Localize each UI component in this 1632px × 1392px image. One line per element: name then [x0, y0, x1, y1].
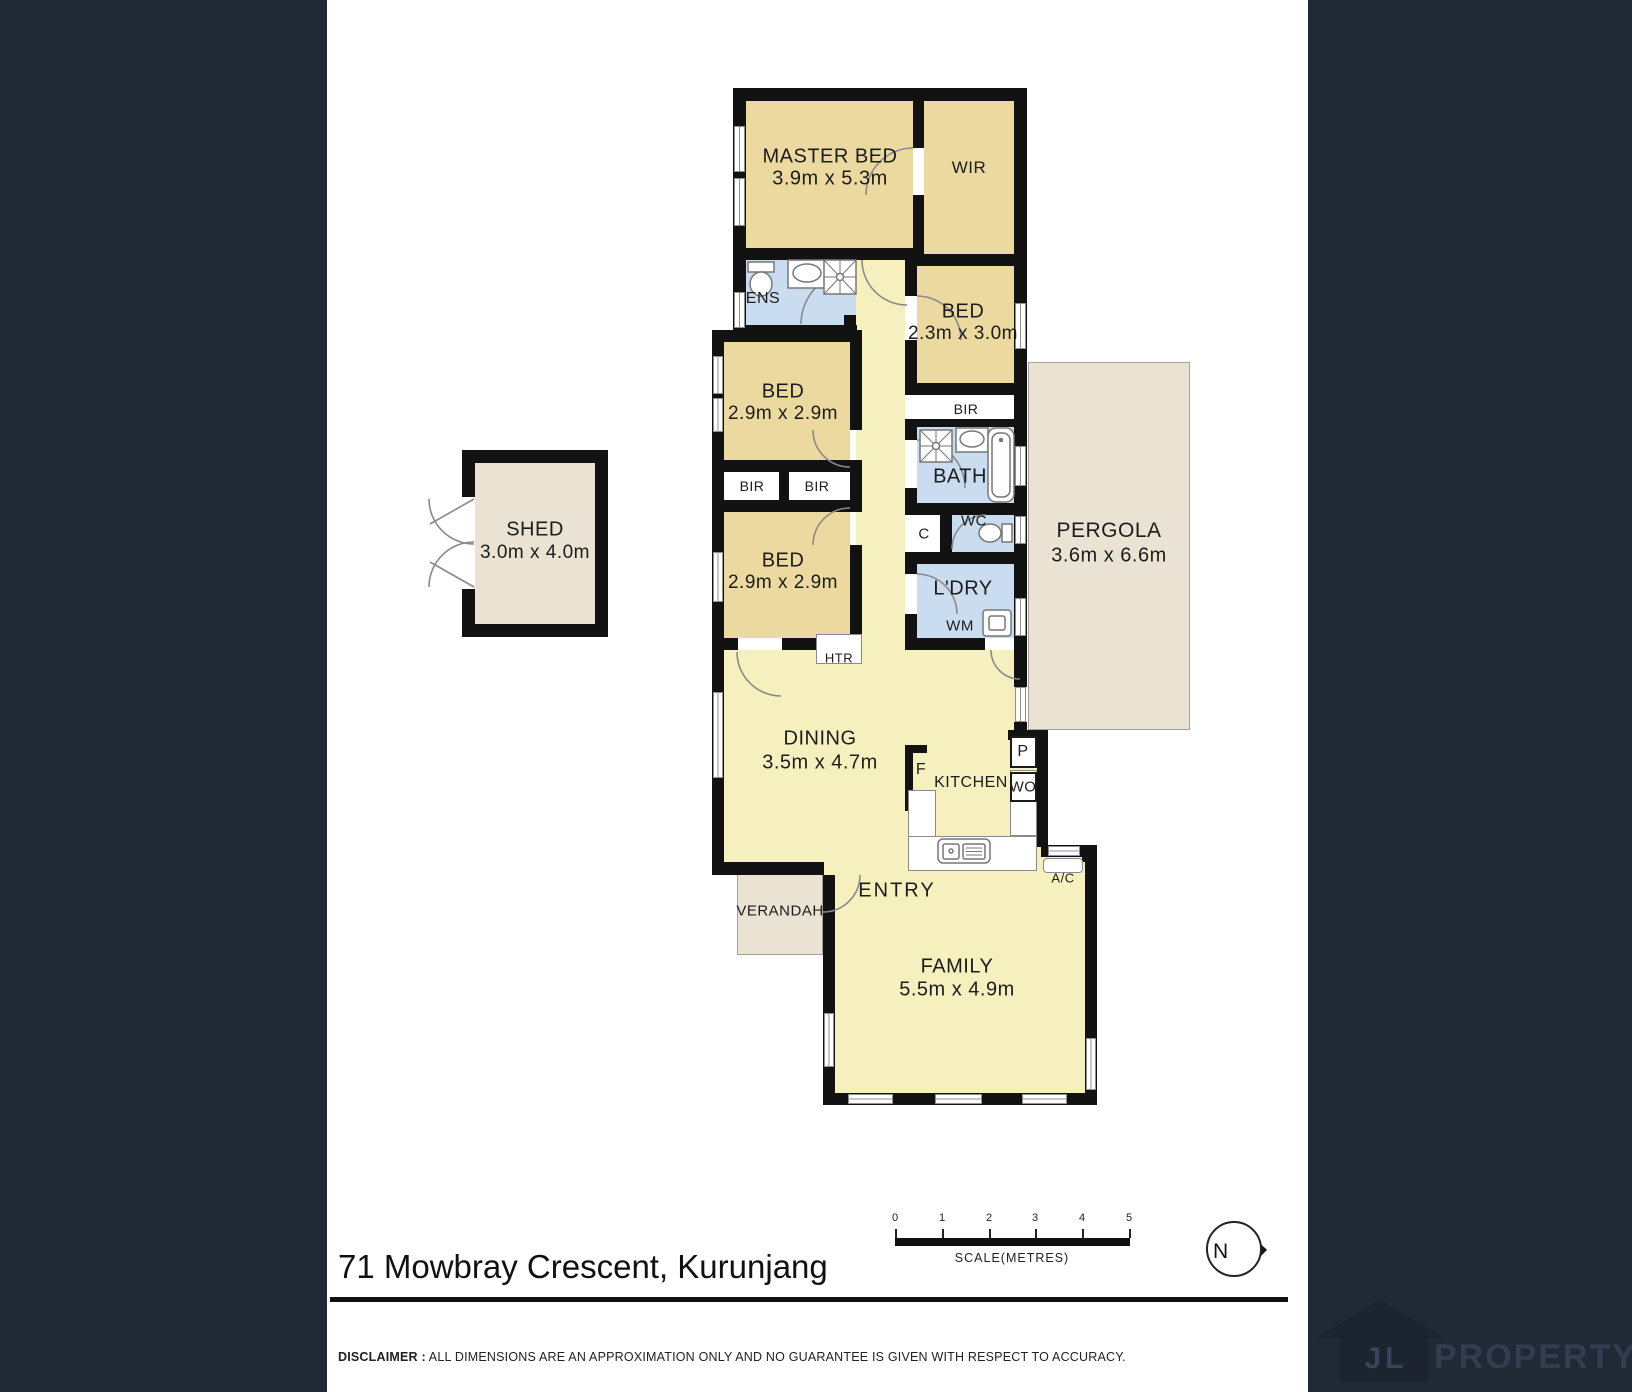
room-label-ens: ENS	[746, 290, 780, 308]
window	[1086, 1038, 1096, 1090]
label-wall-oven: WO	[1010, 779, 1037, 796]
window	[713, 356, 723, 394]
room-dims-dining: 3.5m x 4.7m	[762, 752, 878, 775]
label-pantry: P	[1017, 743, 1028, 761]
window	[734, 178, 745, 226]
scale-bar: 0 1 2 3 4 5 SCALE(METRES)	[885, 1212, 1145, 1268]
wall	[940, 515, 952, 552]
room-dims-pergola: 3.6m x 6.6m	[1051, 545, 1167, 568]
window	[713, 552, 723, 602]
wall	[850, 545, 862, 638]
window	[1015, 446, 1026, 486]
wall	[905, 427, 917, 440]
room-label-dining: DINING	[784, 728, 857, 751]
wall	[1014, 650, 1027, 687]
window	[1015, 687, 1026, 722]
scale-tick-4: 4	[1079, 1212, 1085, 1224]
room-label-closet: C	[918, 526, 929, 543]
scale-tick-5: 5	[1126, 1212, 1132, 1224]
window	[848, 1094, 893, 1104]
label-bir2: BIR	[805, 478, 830, 494]
wall	[733, 88, 1027, 101]
disclaimer-text: DISCLAIMER : ALL DIMENSIONS ARE AN APPRO…	[338, 1350, 1126, 1364]
room-label-entry: ENTRY	[858, 880, 935, 903]
room-dims-master: 3.9m x 5.3m	[772, 168, 888, 191]
room-dims-family: 5.5m x 4.9m	[899, 979, 1015, 1002]
scale-bar-label: SCALE(METRES)	[955, 1251, 1069, 1265]
room-label-verandah: VERANDAH	[736, 903, 823, 920]
scale-tick-3: 3	[1032, 1212, 1038, 1224]
scale-tick-mark	[942, 1229, 944, 1238]
wall	[1014, 638, 1027, 650]
wall	[1037, 740, 1048, 847]
room-dims-bed-small: 2.3m x 3.0m	[908, 323, 1018, 345]
wall	[1014, 88, 1027, 650]
scale-tick-mark	[1082, 1229, 1084, 1238]
right-dark-panel	[1308, 0, 1632, 1392]
brand-initials: JL	[1364, 1342, 1407, 1376]
hallway-floor	[856, 254, 905, 650]
wall	[779, 472, 789, 500]
scale-tick-mark	[1129, 1229, 1131, 1238]
window	[1015, 598, 1026, 636]
window	[824, 1013, 834, 1067]
room-label-kitchen: KITCHEN	[934, 774, 1008, 792]
brand-house-roof-icon	[1316, 1300, 1444, 1338]
wall	[712, 638, 738, 650]
label-wm: WM	[946, 618, 974, 635]
wall	[712, 330, 862, 342]
scale-bar-rule	[895, 1238, 1130, 1246]
room-label-pergola: PERGOLA	[1056, 519, 1161, 543]
room-label-bath: BATH	[933, 466, 987, 489]
room-label-wir: WIR	[952, 158, 987, 178]
label-bir3: BIR	[954, 401, 979, 417]
scale-tick-mark	[1035, 1229, 1037, 1238]
room-label-shed: SHED	[506, 519, 564, 542]
kitchen-counter	[908, 836, 1037, 871]
wall	[733, 248, 915, 260]
room-label-wc: WC	[961, 513, 987, 530]
shed-door-opening	[462, 497, 475, 589]
disclaimer-label: DISCLAIMER :	[338, 1350, 426, 1364]
wall	[844, 260, 856, 270]
window	[935, 1094, 982, 1104]
wall	[850, 342, 862, 430]
scale-tick-1: 1	[939, 1212, 945, 1224]
wall	[905, 564, 917, 574]
room-label-bed-low: BED	[762, 550, 805, 573]
wall	[712, 862, 824, 875]
window	[713, 398, 723, 432]
compass-north-label: N	[1213, 1240, 1228, 1264]
label-bir1: BIR	[740, 478, 765, 494]
disclaimer-body: ALL DIMENSIONS ARE AN APPROXIMATION ONLY…	[426, 1350, 1126, 1364]
wall	[724, 460, 862, 472]
scale-tick-2: 2	[986, 1212, 992, 1224]
room-dims-bed-mid: 2.9m x 2.9m	[728, 403, 838, 425]
room-dims-bed-low: 2.9m x 2.9m	[728, 572, 838, 594]
label-ac: A/C	[1051, 871, 1074, 886]
left-dark-panel	[0, 0, 327, 1392]
wall	[905, 266, 917, 296]
room-label-bed-small: BED	[942, 301, 985, 324]
window	[1022, 1094, 1067, 1104]
wall	[905, 552, 1027, 564]
address-text: 71 Mowbray Crescent, Kurunjang	[338, 1248, 828, 1286]
divider-rule	[330, 1297, 1288, 1302]
room-label-master: MASTER BED	[762, 146, 897, 169]
scale-tick-0: 0	[892, 1212, 898, 1224]
window	[734, 126, 745, 172]
wall	[905, 614, 917, 638]
scale-tick-mark	[989, 1229, 991, 1238]
wall	[1014, 722, 1027, 730]
wall	[905, 419, 1027, 427]
wall	[913, 101, 924, 148]
wall	[724, 500, 862, 512]
window	[713, 692, 723, 778]
label-fridge: F	[916, 761, 926, 779]
room-label-family: FAMILY	[921, 956, 994, 979]
wall	[905, 383, 1027, 395]
scale-tick-mark	[895, 1229, 897, 1238]
wall	[905, 254, 1027, 266]
room-label-bed-mid: BED	[762, 381, 805, 404]
room-label-laundry: L'DRY	[933, 578, 992, 601]
wall	[905, 638, 985, 650]
window	[1015, 516, 1026, 544]
window	[1048, 846, 1080, 856]
label-htr: HTR	[825, 651, 853, 666]
room-dims-shed: 3.0m x 4.0m	[480, 542, 590, 564]
floorplan-page: MASTER BED 3.9m x 5.3m WIR ENS BED 2.3m …	[0, 0, 1632, 1392]
window	[734, 292, 745, 328]
brand-name: PROPERTY	[1434, 1338, 1632, 1377]
